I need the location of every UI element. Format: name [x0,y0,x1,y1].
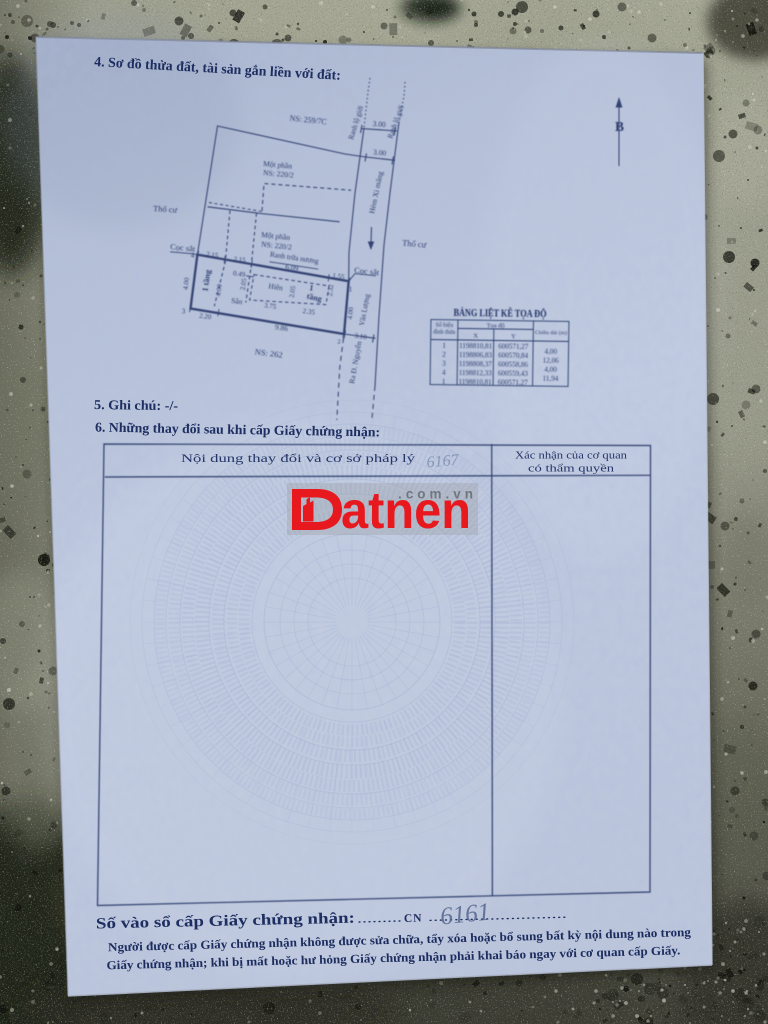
svg-text:Số hiệu: Số hiệu [436,322,454,329]
svg-text:3: 3 [442,360,446,368]
svg-text:4: 4 [442,369,446,377]
svg-text:12,06: 12,06 [543,357,560,365]
svg-text:3: 3 [182,308,186,316]
svg-text:600571,27: 600571,27 [498,342,529,350]
svg-text:Nội dung thay đổi và cơ sở phá: Nội dung thay đổi và cơ sở pháp lý [181,452,415,465]
svg-text:Y: Y [511,333,516,340]
svg-text:X: X [473,333,478,340]
svg-text:1198810,81: 1198810,81 [459,378,493,386]
svg-text:600558,86: 600558,86 [498,360,529,368]
svg-text:BẢNG LIỆT KÊ TỌA ĐỘ: BẢNG LIỆT KÊ TỌA ĐỘ [453,306,546,320]
svg-text:Thổ cư: Thổ cư [402,238,427,250]
svg-text:3.00: 3.00 [372,119,386,129]
svg-text:1: 1 [442,378,446,386]
svg-text:.........: ......... [357,910,402,926]
svg-text:2.32: 2.32 [327,283,335,296]
svg-text:Tọa độ: Tọa độ [487,322,505,329]
svg-text:3.00: 3.00 [373,147,387,157]
svg-text:4,00: 4,00 [544,366,557,374]
svg-text:atnen: atnen [341,482,471,540]
svg-text:có thẩm quyền: có thẩm quyền [528,463,615,475]
svg-text:Thổ cư: Thổ cư [153,204,178,215]
svg-text:1198810,81: 1198810,81 [459,342,493,350]
svg-text:Chiều dài (m): Chiều dài (m) [535,329,567,336]
svg-text:9.86: 9.86 [274,322,288,333]
svg-text:4,00: 4,00 [544,348,557,356]
svg-text:4: 4 [191,252,195,260]
svg-text:2: 2 [337,339,340,346]
svg-text:1198808,37: 1198808,37 [459,360,493,368]
svg-text:600571,27: 600571,27 [498,378,529,386]
svg-text:5. Ghi chú: -/-: 5. Ghi chú: -/- [94,397,178,413]
svg-text:Xác nhận của cơ quan: Xác nhận của cơ quan [515,450,628,462]
svg-text:1198812,33: 1198812,33 [459,369,493,377]
svg-text:đỉnh thửa: đỉnh thửa [433,330,455,336]
svg-text:600559,43: 600559,43 [498,369,529,377]
svg-text:Sân: Sân [231,296,244,307]
svg-text:4.00: 4.00 [346,306,355,320]
svg-text:1: 1 [442,342,446,350]
svg-text:11,94: 11,94 [542,375,558,383]
svg-text:2: 2 [442,351,446,359]
svg-text:600570,84: 600570,84 [498,351,529,359]
svg-text:CN: CN [404,913,423,925]
svg-text:1: 1 [349,286,353,294]
svg-text:1198806,83: 1198806,83 [459,351,493,359]
svg-text:6167: 6167 [426,452,460,472]
svg-text:6161: 6161 [439,899,492,931]
svg-text:B: B [615,119,624,134]
